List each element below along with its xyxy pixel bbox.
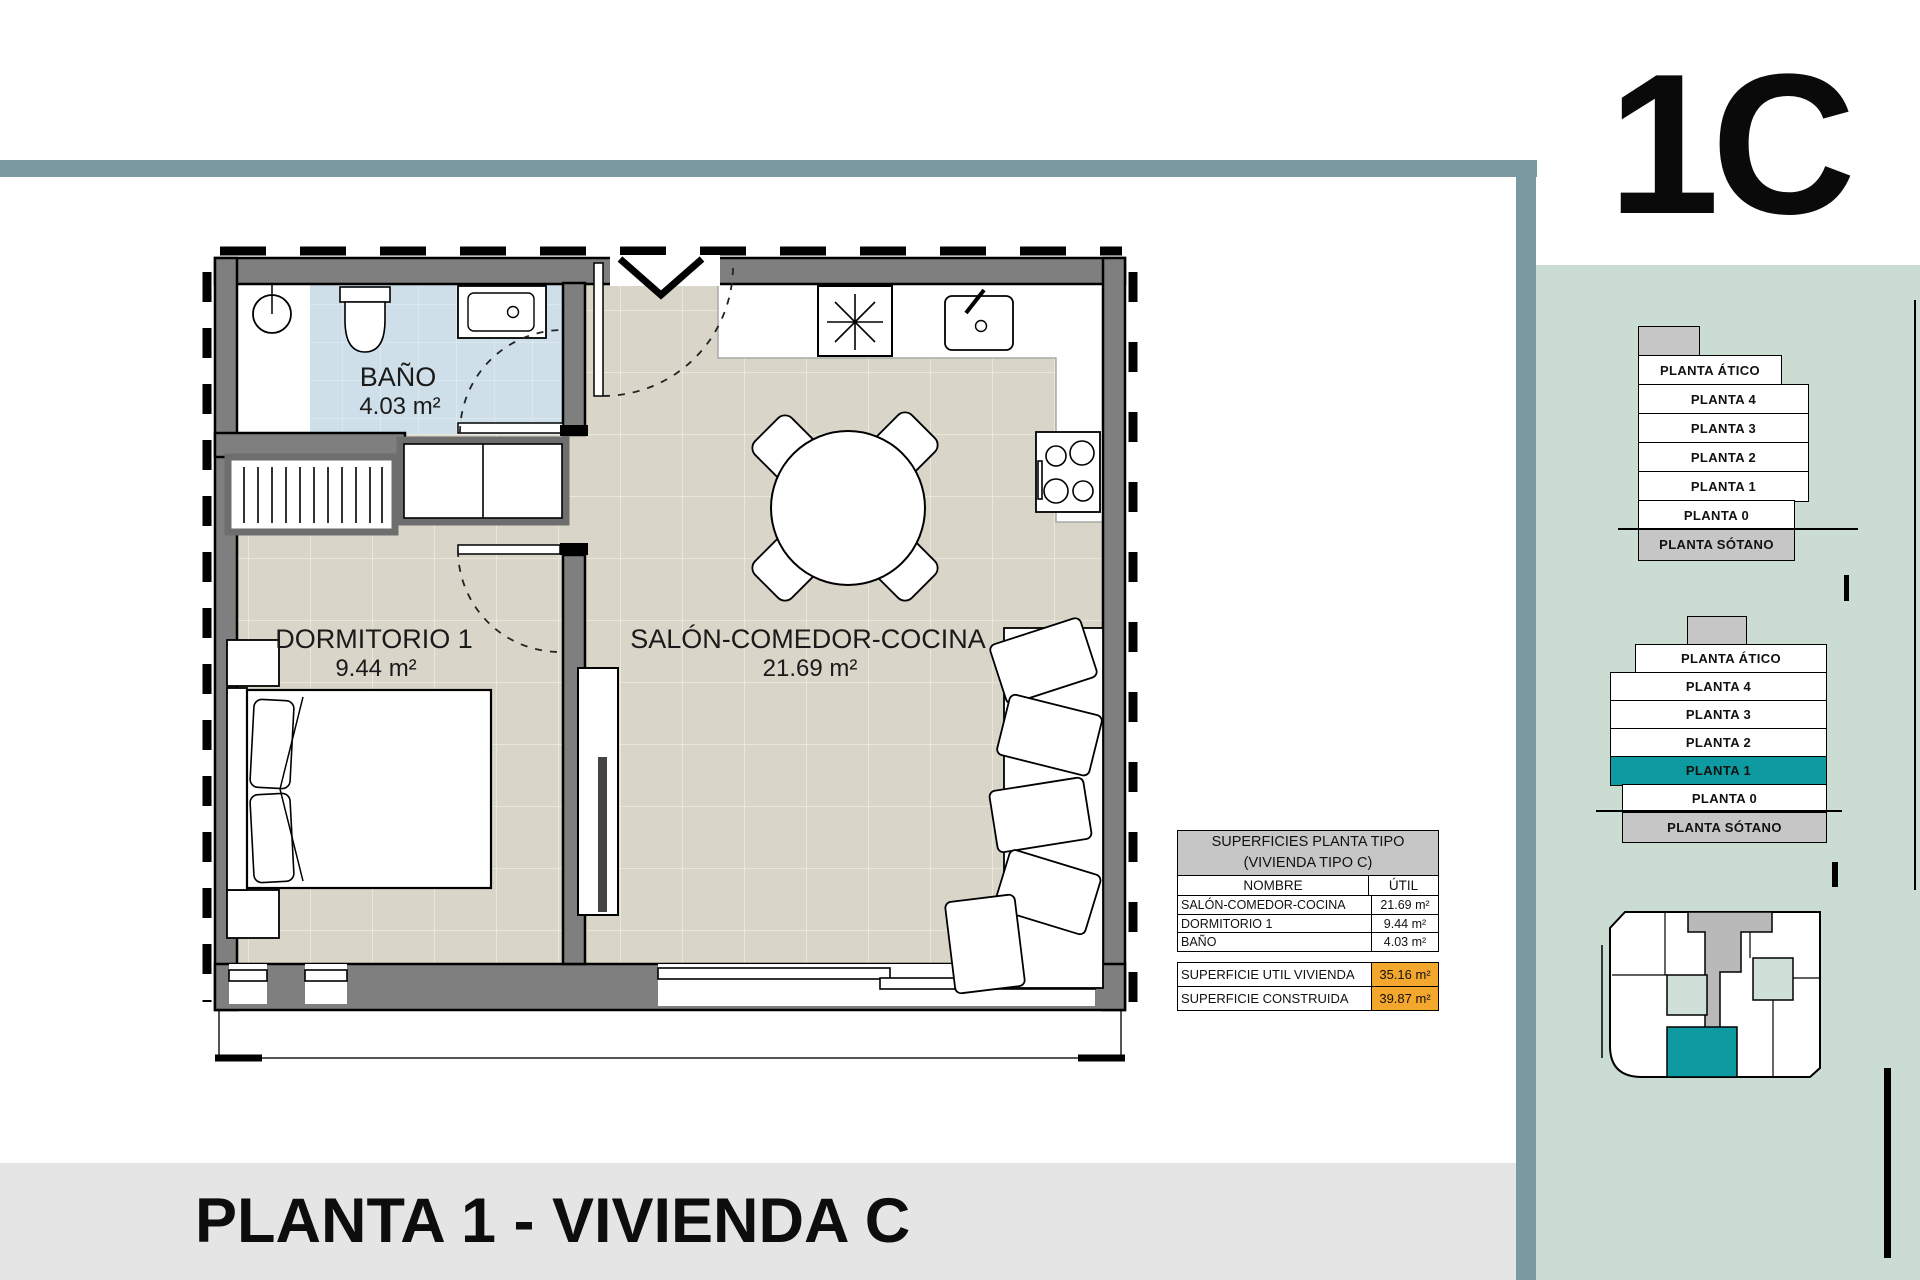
building1-roof-box [1638,326,1700,357]
unit-type-label: 1C [1536,50,1920,240]
site-key-plan [1595,900,1850,1090]
row-living-name: SALÓN-COMEDOR-COCINA [1178,896,1372,914]
sofa-chaise [945,894,1026,994]
surfaces-table: SUPERFICIES PLANTA TIPO (VIVIENDA TIPO C… [1177,830,1439,1011]
wall-right [1103,258,1125,1010]
living-area: 21.69 m² [763,655,858,682]
page-title: PLANTA 1 - VIVIENDA C [195,1185,910,1257]
table-row: BAÑO 4.03 m² [1177,932,1439,952]
nightstand [227,640,279,686]
nightstand [227,890,279,938]
wall-bath-bottom [215,433,405,457]
registration-tick [1884,1068,1891,1258]
row-bath-util: 4.03 m² [1372,933,1438,951]
row-bedroom-util: 9.44 m² [1372,915,1438,933]
registration-tick [1844,575,1849,601]
edge-line [1914,300,1916,890]
unit-c-highlight [1667,1027,1737,1077]
sink-basin [468,293,534,331]
bath-area: 4.03 m² [359,393,440,420]
col-util: ÚTIL [1369,876,1438,896]
building2-floor-atico: PLANTA ÁTICO [1635,644,1827,674]
totals-block: SUPERFICIE UTIL VIVIENDA 35.16 m² SUPERF… [1177,962,1439,1011]
toilet-bowl-icon [345,302,385,352]
row-bath-name: BAÑO [1178,933,1372,951]
col-nombre: NOMBRE [1178,876,1369,896]
bedroom-label: DORMITORIO 1 [275,624,473,654]
bath-label: BAÑO [360,361,437,392]
pillow [250,793,295,883]
building1-floor-atico: PLANTA ÁTICO [1638,355,1782,386]
bath-door-leaf [458,423,563,433]
dining-table [771,431,925,585]
building2-roof-box [1687,616,1747,646]
toilet-tank [340,287,390,302]
building1-floor-3: PLANTA 3 [1638,413,1809,444]
building1-floor-1: PLANTA 1 [1638,471,1809,502]
building2-floor-4: PLANTA 4 [1610,672,1827,702]
building2-floor-sotano: PLANTA SÓTANO [1622,812,1827,843]
patio-1 [1667,975,1707,1015]
total-built-row: SUPERFICIE CONSTRUIDA 39.87 m² [1177,986,1439,1011]
snowflake-icon [827,294,883,350]
building1-floor-2: PLANTA 2 [1638,442,1809,473]
window-bedroom-2 [305,970,347,981]
building2-floor-3: PLANTA 3 [1610,700,1827,730]
total-util-value: 35.16 m² [1372,963,1438,986]
door-jamb [560,425,588,436]
sheet: 1C PLANTA 1 - VIVIENDA C [0,0,1920,1280]
closets [228,440,566,532]
surfaces-table-title: SUPERFICIES PLANTA TIPO (VIVIENDA TIPO C… [1177,830,1439,876]
window-living-1 [658,968,890,979]
building1-floor-0: PLANTA 0 [1638,500,1795,531]
frame-top-bar [0,160,1537,177]
sink-drain [976,321,987,332]
patio-2 [1753,958,1793,1000]
total-util-row: SUPERFICIE UTIL VIVIENDA 35.16 m² [1177,962,1439,987]
wall-bath-right [563,283,585,435]
table-row: SALÓN-COMEDOR-COCINA 21.69 m² [1177,895,1439,915]
floor-plan: BAÑO 4.03 m² DORMITORIO 1 9.44 m² SALÓN-… [0,177,1516,1163]
door-jamb [560,543,588,555]
row-bedroom-name: DORMITORIO 1 [1178,915,1372,933]
tv-unit [578,668,618,915]
faucet-dot [508,307,519,318]
row-living-util: 21.69 m² [1372,896,1438,914]
surfaces-title-line1: SUPERFICIES PLANTA TIPO [1178,832,1438,853]
bedroom-area: 9.44 m² [335,655,416,682]
total-util-label: SUPERFICIE UTIL VIVIENDA [1178,963,1372,986]
surfaces-header-row: NOMBRE ÚTIL [1177,875,1439,897]
surfaces-title-line2: (VIVIENDA TIPO C) [1178,853,1438,874]
table-row: DORMITORIO 1 9.44 m² [1177,914,1439,934]
headboard [227,688,247,890]
bedroom-door-leaf [458,545,560,554]
pillow [250,699,295,789]
window-bedroom-1 [229,970,267,981]
total-built-value: 39.87 m² [1372,987,1438,1010]
building2-floor-1-highlighted: PLANTA 1 [1610,756,1827,786]
building1-floor-4: PLANTA 4 [1638,384,1809,415]
building1-floor-sotano: PLANTA SÓTANO [1638,529,1795,561]
frame-vertical-line [1516,160,1536,1280]
total-built-label: SUPERFICIE CONSTRUIDA [1178,987,1372,1010]
entry-door-leaf [594,263,603,396]
tv-screen [598,757,607,912]
building2-floor-2: PLANTA 2 [1610,728,1827,758]
dining-set [748,408,942,605]
balcony [215,1010,1125,1058]
registration-tick [1832,862,1838,887]
living-label: SALÓN-COMEDOR-COCINA [630,623,986,654]
